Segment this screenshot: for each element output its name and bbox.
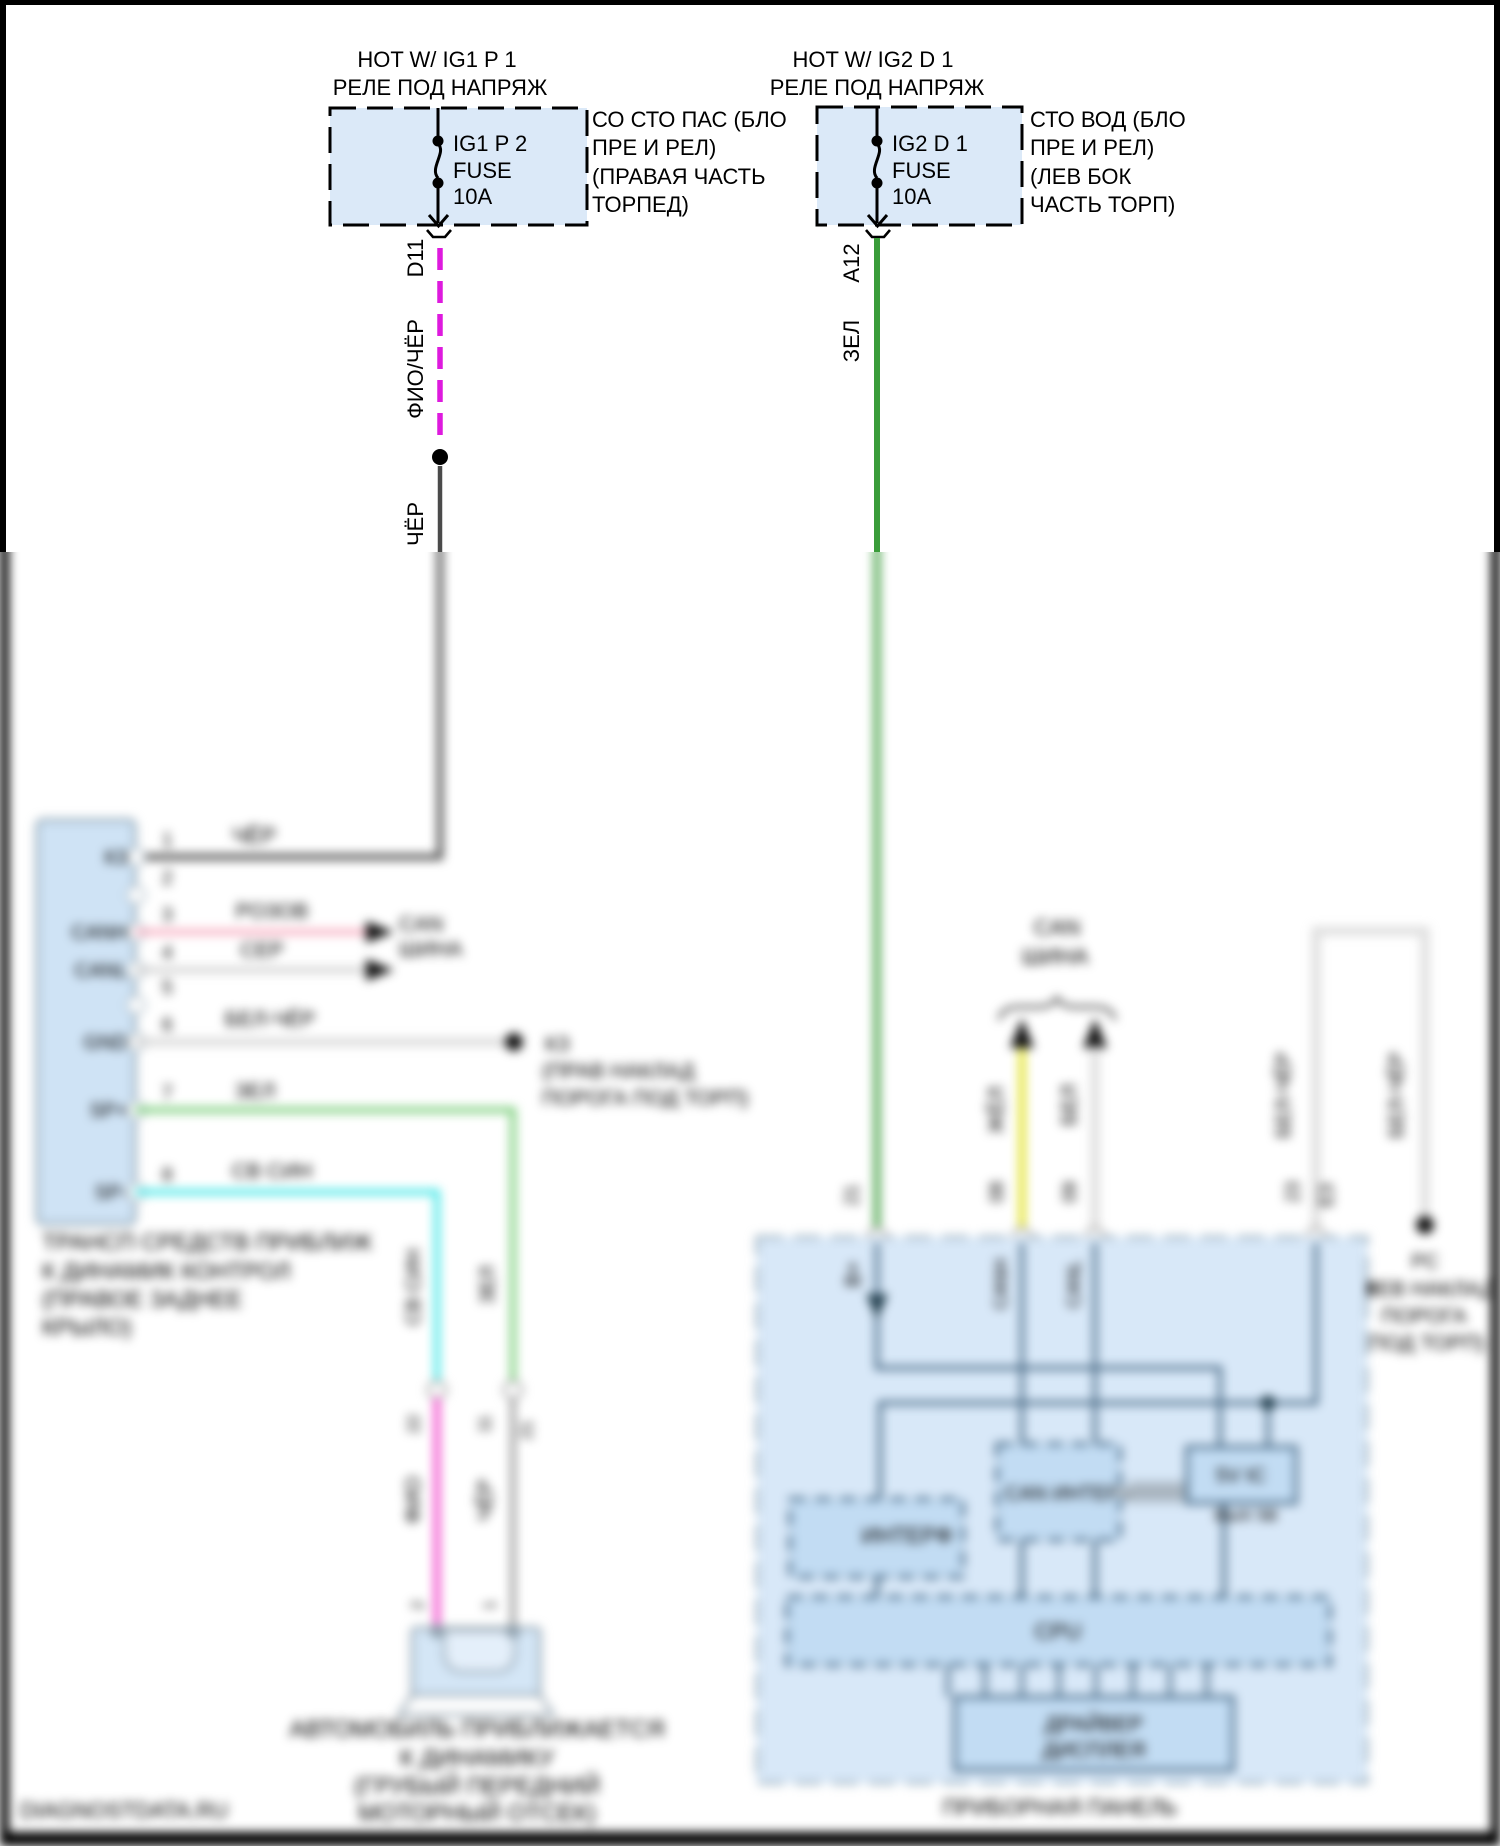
svg-text:ДРАЙВЕР: ДРАЙВЕР <box>1045 1712 1143 1736</box>
svg-text:(ЛЕВ БОК: (ЛЕВ БОК <box>1030 164 1132 189</box>
svg-text:CAN: CAN <box>1034 915 1080 940</box>
svg-text:(ЛЕВ НАКЛАД: (ЛЕВ НАКЛАД <box>1357 1278 1496 1301</box>
svg-text:2: 2 <box>408 1601 427 1610</box>
svg-text:СВ СИН: СВ СИН <box>403 1249 425 1326</box>
svg-text:4: 4 <box>162 943 173 964</box>
svg-text:БЕЛ-ЧЁР: БЕЛ-ЧЁР <box>1386 1052 1408 1138</box>
svg-text:ЕЗ: ЕЗ <box>1317 1183 1338 1207</box>
svg-text:ПОРОГА ПОД ТОРП): ПОРОГА ПОД ТОРП) <box>542 1087 748 1110</box>
svg-text:FUSE: FUSE <box>892 158 951 183</box>
svg-text:ЗЕЛ: ЗЕЛ <box>477 1266 499 1305</box>
svg-text:ФИО/ЧЁР: ФИО/ЧЁР <box>403 319 428 419</box>
svg-text:ЗЕЛ: ЗЕЛ <box>839 320 864 362</box>
svg-text:(ПРАВ НАКЛАД: (ПРАВ НАКЛАД <box>542 1060 695 1083</box>
svg-text:ПРИБОРНАЯ ПАНЕЛЬ: ПРИБОРНАЯ ПАНЕЛЬ <box>943 1795 1178 1820</box>
svg-text:ПОД ТОРП): ПОД ТОРП) <box>1369 1332 1484 1355</box>
svg-text:ЧЁР: ЧЁР <box>232 823 276 848</box>
svg-text:(ПРАВАЯ ЧАСТЬ: (ПРАВАЯ ЧАСТЬ <box>592 164 766 189</box>
svg-text:К ДИНАМИКУ: К ДИНАМИКУ <box>400 1745 555 1772</box>
svg-text:БЕЛ-ЧЁР: БЕЛ-ЧЁР <box>1273 1052 1295 1138</box>
svg-text:ЧАСТЬ ТОРП): ЧАСТЬ ТОРП) <box>1030 192 1175 217</box>
svg-text:ТОРПЕД): ТОРПЕД) <box>592 192 689 217</box>
svg-text:(ПРАВОЕ ЗАДНЕЕ: (ПРАВОЕ ЗАДНЕЕ <box>42 1286 242 1312</box>
svg-text:БЕЛ-ЧЁР: БЕЛ-ЧЁР <box>225 1008 316 1031</box>
svg-text:АВТОМОБИЛЬ ПРИБЛИЖАЕТСЯ: АВТОМОБИЛЬ ПРИБЛИЖАЕТСЯ <box>289 1716 664 1743</box>
svg-text:D11: D11 <box>403 239 428 278</box>
svg-text:HOT W/ IG1 P 1: HOT W/ IG1 P 1 <box>357 47 516 72</box>
svg-text:CANL: CANL <box>1064 1260 1084 1308</box>
svg-text:СТО ВОД (БЛО: СТО ВОД (БЛО <box>1030 107 1186 132</box>
svg-text:SP+: SP+ <box>90 1100 128 1122</box>
svg-text:CANH: CANH <box>71 922 128 944</box>
svg-text:SP-: SP- <box>95 1182 128 1204</box>
svg-text:CANH: CANH <box>991 1258 1011 1309</box>
svg-text:(ГРУБЫЙ ПЕРЕДНИЙ: (ГРУБЫЙ ПЕРЕДНИЙ <box>354 1772 600 1800</box>
svg-text:21: 21 <box>842 1184 863 1205</box>
svg-text:СЕР: СЕР <box>240 939 283 962</box>
svg-text:ДИСПЛЕЯ: ДИСПЛЕЯ <box>1043 1739 1146 1762</box>
svg-text:КРЫЛО): КРЫЛО) <box>42 1314 132 1340</box>
svg-text:РОЗОВ: РОЗОВ <box>236 900 309 923</box>
svg-text:11: 11 <box>475 1415 494 1433</box>
svg-text:КЗ: КЗ <box>104 847 128 869</box>
svg-text:1: 1 <box>162 830 173 851</box>
svg-text:2: 2 <box>162 868 173 889</box>
svg-text:РС: РС <box>1411 1251 1439 1273</box>
svg-text:10A: 10A <box>892 184 931 209</box>
svg-text:ПРЕ И РЕЛ): ПРЕ И РЕЛ) <box>1030 135 1154 160</box>
svg-text:СВ СИН: СВ СИН <box>232 1160 312 1183</box>
svg-text:IG1 P 2: IG1 P 2 <box>453 131 527 156</box>
svg-text:3: 3 <box>162 905 173 926</box>
svg-text:5: 5 <box>162 978 173 999</box>
svg-text:09: 09 <box>1060 1181 1081 1202</box>
svg-text:ШИНА: ШИНА <box>399 938 463 961</box>
svg-text:ЗЕЛ: ЗЕЛ <box>235 1080 275 1103</box>
svg-text:ФИО: ФИО <box>402 1476 425 1523</box>
svg-text:РЕЛЕ ПОД НАПРЯЖ: РЕЛЕ ПОД НАПРЯЖ <box>770 75 985 100</box>
svg-text:К ДИНАМИК КОНТРОЛ: К ДИНАМИК КОНТРОЛ <box>42 1258 291 1284</box>
svg-text:1: 1 <box>480 1601 499 1610</box>
svg-text:CPU: CPU <box>1035 1619 1081 1644</box>
svg-text:ПОРОГА: ПОРОГА <box>1381 1305 1466 1328</box>
svg-text:08: 08 <box>987 1181 1008 1202</box>
svg-text:10A: 10A <box>453 184 492 209</box>
svg-text:ЖЁЛ: ЖЁЛ <box>985 1086 1008 1133</box>
svg-text:6: 6 <box>162 1015 173 1036</box>
svg-text:8: 8 <box>162 1165 173 1186</box>
svg-text:В+: В+ <box>842 1261 865 1287</box>
svg-text:22: 22 <box>404 1415 423 1434</box>
svg-text:БЕЛ: БЕЛ <box>1058 1084 1081 1126</box>
svg-text:СО СТО ПАС (БЛО: СО СТО ПАС (БЛО <box>592 107 787 132</box>
svg-text:21: 21 <box>517 1421 536 1440</box>
svg-text:CANL: CANL <box>75 960 128 982</box>
svg-text:ВЫХ 5В: ВЫХ 5В <box>1214 1506 1277 1525</box>
svg-text:ТРАНСП СРЕДСТВ ПРИБЛИЖ: ТРАНСП СРЕДСТВ ПРИБЛИЖ <box>42 1229 372 1255</box>
svg-text:HOT W/ IG2 D 1: HOT W/ IG2 D 1 <box>793 47 954 72</box>
svg-text:РЕЛЕ ПОД НАПРЯЖ: РЕЛЕ ПОД НАПРЯЖ <box>333 75 548 100</box>
svg-text:МОТОРНЫЙ ОТСЕК): МОТОРНЫЙ ОТСЕК) <box>358 1799 596 1827</box>
svg-text:DIAGNOSTDATA.RU: DIAGNOSTDATA.RU <box>20 1798 228 1823</box>
svg-text:CAN: CAN <box>399 913 443 936</box>
svg-text:ЧЁР: ЧЁР <box>474 1479 497 1521</box>
svg-text:IG2 D 1: IG2 D 1 <box>892 131 968 156</box>
svg-text:ПРЕ И РЕЛ): ПРЕ И РЕЛ) <box>592 135 716 160</box>
svg-text:23: 23 <box>1283 1181 1304 1202</box>
svg-text:ЧЁР: ЧЁР <box>403 502 428 546</box>
svg-text:GND: GND <box>84 1032 128 1054</box>
svg-text:ИНТЕРФ: ИНТЕРФ <box>862 1523 953 1548</box>
svg-text:5V IC: 5V IC <box>1216 1465 1266 1487</box>
svg-text:ШИНА: ШИНА <box>1022 944 1089 969</box>
svg-text:FUSE: FUSE <box>453 158 512 183</box>
svg-text:7: 7 <box>162 1083 173 1104</box>
svg-text:КЗ: КЗ <box>545 1033 570 1056</box>
svg-text:A12: A12 <box>839 243 864 282</box>
